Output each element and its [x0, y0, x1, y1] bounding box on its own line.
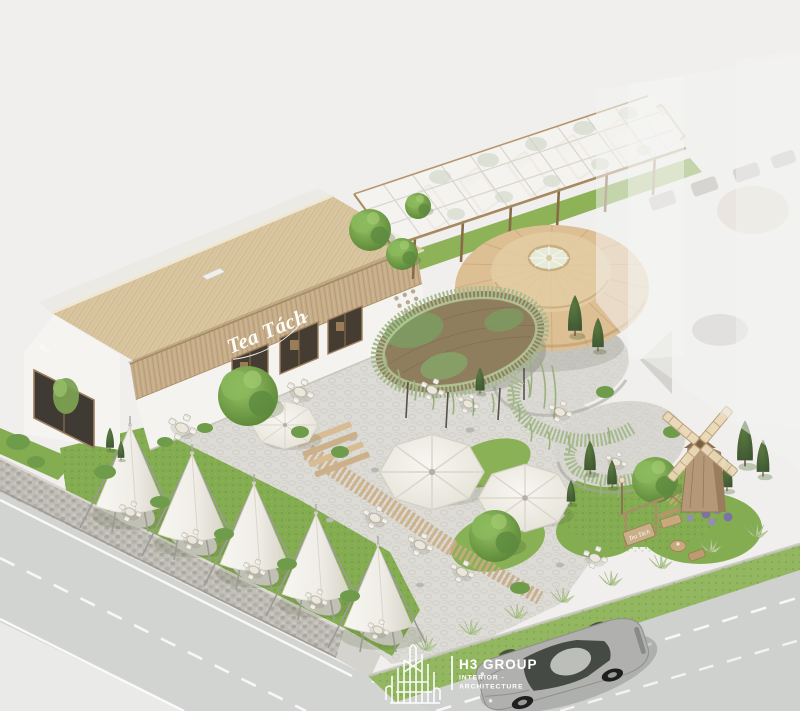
- logo-subtitle-2: ARCHITECTURE: [459, 684, 523, 691]
- render-canvas: Tea Tea Tách: [0, 0, 800, 711]
- logo-subtitle-1: INTERIOR -: [459, 675, 505, 682]
- white-umbrella: [380, 434, 484, 509]
- aerial-render: Tea Tea Tách: [0, 0, 800, 711]
- logo-title: H3 GROUP: [459, 657, 538, 672]
